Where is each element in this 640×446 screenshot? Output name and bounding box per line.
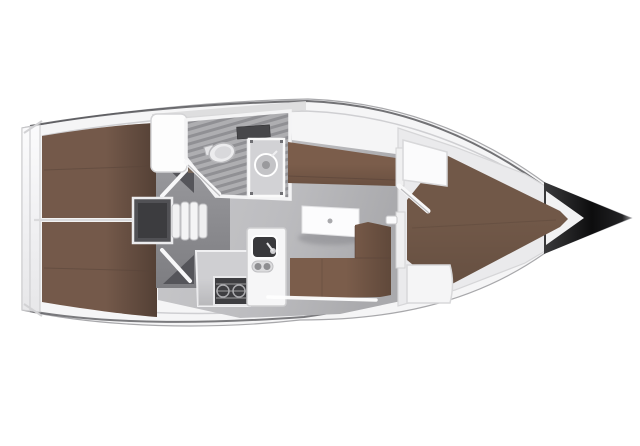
companionway-hatch	[151, 114, 187, 172]
forward-cabin-seat	[407, 265, 453, 303]
companionway-steps	[172, 202, 207, 240]
mirror-slot	[237, 125, 271, 139]
galley-sink	[252, 236, 277, 258]
galley-sink-unit	[247, 228, 286, 306]
knob	[264, 263, 271, 270]
galley-stove	[214, 277, 248, 305]
floorplan-canvas	[0, 0, 640, 446]
mast-fitting	[386, 216, 397, 224]
engine-compartment-inner	[138, 203, 167, 238]
transom	[22, 121, 42, 316]
yacht-floorplan	[0, 0, 640, 446]
table-centerpiece	[328, 219, 333, 224]
knob	[255, 263, 262, 270]
washbasin-unit	[249, 139, 284, 196]
